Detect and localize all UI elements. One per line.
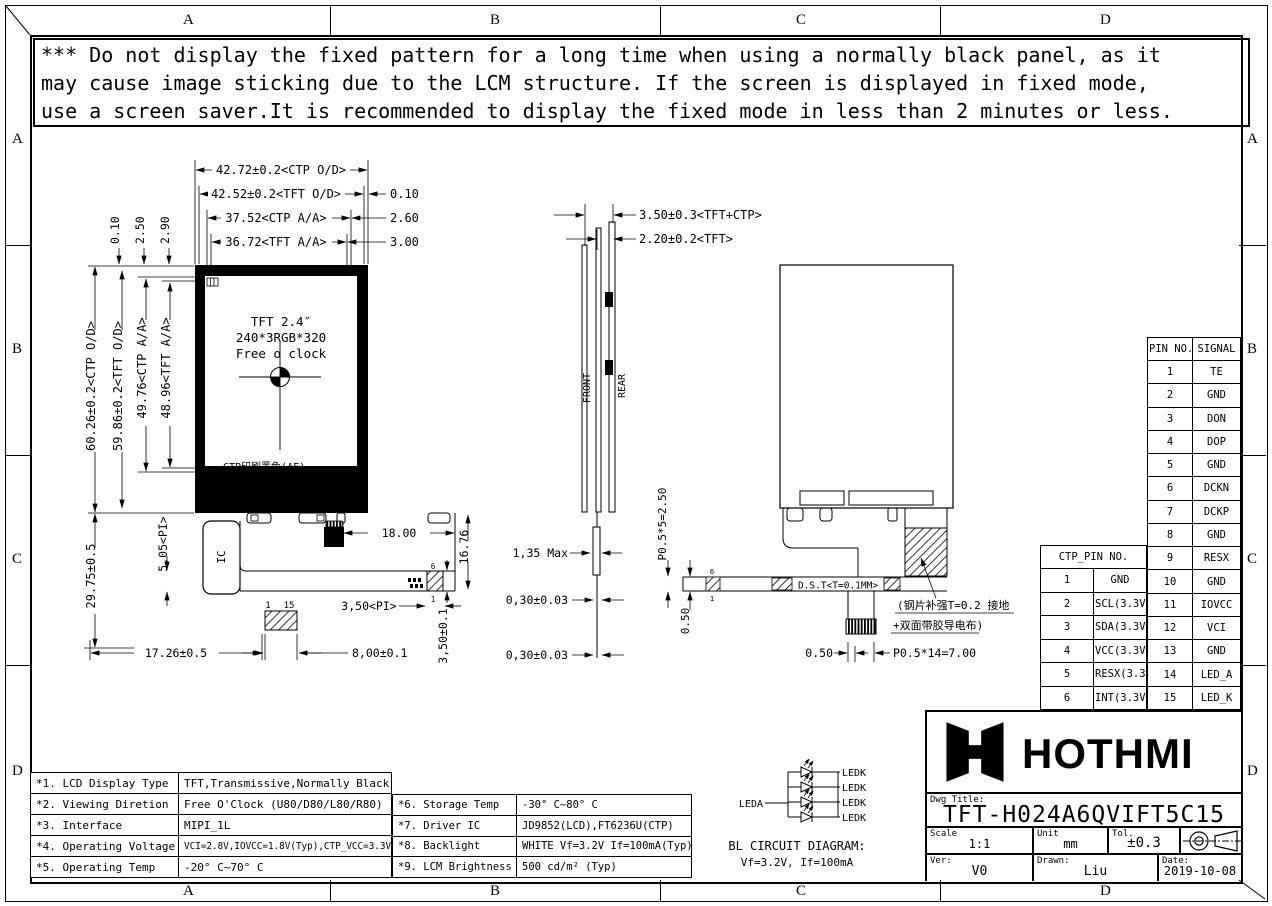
dim-label: 0.10 bbox=[390, 187, 419, 201]
dim-label: 2.20±0.2<TFT> bbox=[639, 232, 733, 246]
led-row bbox=[788, 774, 840, 792]
pin-signal: RESX(3.3V) bbox=[1094, 663, 1147, 687]
col-header: PIN NO. bbox=[1148, 338, 1193, 361]
pin-number: 1 bbox=[265, 601, 270, 611]
projection-cell bbox=[1179, 826, 1241, 853]
pin-no: 2 bbox=[1041, 592, 1094, 616]
projection-symbol-icon bbox=[1181, 828, 1243, 855]
pin-signal: GND bbox=[1193, 570, 1241, 593]
pin-no: 11 bbox=[1148, 593, 1193, 616]
dim-label: 0.50 bbox=[805, 646, 833, 660]
bl-circuit-subtitle: Vf=3.2V, If=100mA bbox=[741, 856, 854, 869]
signal-pin-table: PIN NO. SIGNAL 1TE 2GND 3DON 4DOP 5GND 6… bbox=[1147, 337, 1241, 710]
version-row: Ver: V0 Drawn: Liu Date: 2019-10-08 bbox=[927, 853, 1241, 881]
corner-diagonal bbox=[1239, 880, 1265, 899]
drawing-sheet: A B C D A B C D A B C D A B C D *** Do n… bbox=[0, 0, 1272, 906]
spec-value: WHITE Vf=3.2V If=100mA(Typ) bbox=[517, 836, 692, 857]
ledk-label: LEDK bbox=[842, 768, 866, 779]
pin-signal: SDA(3.3V) bbox=[1094, 616, 1147, 640]
pin-number: 1 bbox=[431, 595, 436, 604]
pin-signal: GND bbox=[1193, 640, 1241, 663]
pin-no: 5 bbox=[1148, 454, 1193, 477]
dim-label: 0,30±0.03 bbox=[506, 648, 568, 662]
pin-no: 1 bbox=[1041, 569, 1094, 593]
led-row bbox=[788, 804, 840, 822]
spec-label: *9. LCM Brightness bbox=[393, 857, 517, 878]
stiffener-note: +双面带胶导电布) bbox=[893, 618, 983, 632]
pin-number: 1 bbox=[710, 595, 714, 603]
tol-value: ±0.3 bbox=[1109, 835, 1179, 851]
dim-label: 59.86±0.2<TFT O/D> bbox=[111, 321, 125, 451]
dim-label: P0.5*14=7.00 bbox=[893, 646, 976, 660]
pin-signal: GND bbox=[1193, 384, 1241, 407]
dim-label: 2.90 bbox=[158, 216, 172, 244]
pin-no: 8 bbox=[1148, 523, 1193, 546]
dim-label: 60.26±0.2<CTP O/D> bbox=[84, 321, 98, 451]
pin-number: 6 bbox=[431, 562, 436, 571]
pin-no: 7 bbox=[1148, 500, 1193, 523]
spec-label: *5. Operating Temp bbox=[31, 857, 179, 878]
spec-label: *6. Storage Temp bbox=[393, 795, 517, 816]
pin-no: 9 bbox=[1148, 547, 1193, 570]
spec-label: *4. Operating Voltage bbox=[31, 836, 179, 857]
dim-label: 42.72±0.2<CTP O/D> bbox=[216, 163, 346, 177]
spec-value: VCI=2.8V,IOVCC=1.8V(Typ),CTP_VCC=3.3V bbox=[179, 836, 392, 857]
side-view: FRONT REAR bbox=[506, 204, 947, 662]
spec-table-left: *1. LCD Display TypeTFT,Transmissive,Nor… bbox=[30, 772, 392, 878]
brand-name: HOTHMI bbox=[1022, 733, 1194, 775]
pin-no: 12 bbox=[1148, 616, 1193, 639]
hothmi-logo-icon bbox=[939, 721, 1011, 783]
pin-no: 6 bbox=[1148, 477, 1193, 500]
ic-label: IC bbox=[215, 550, 228, 563]
bl-circuit-title: BL CIRCUIT DIAGRAM: bbox=[728, 839, 865, 853]
pin-signal: LED_A bbox=[1193, 663, 1241, 686]
dim-label: P0.5*5=2.50 bbox=[656, 488, 669, 561]
pin-no: 2 bbox=[1148, 384, 1193, 407]
date-cell: Date: 2019-10-08 bbox=[1157, 853, 1241, 881]
led-row bbox=[788, 759, 840, 777]
ledk-label: LEDK bbox=[842, 783, 866, 794]
dim-label: 17.26±0.5 bbox=[145, 646, 207, 660]
ver-cell: Ver: V0 bbox=[927, 853, 1032, 881]
pin-no: 6 bbox=[1041, 686, 1094, 710]
dim-label: 0.50 bbox=[679, 608, 692, 635]
dim-label: 3,50±0.1 bbox=[436, 608, 450, 663]
pin-signal: RESX bbox=[1193, 547, 1241, 570]
rear-label: REAR bbox=[617, 373, 628, 398]
pin-no: 14 bbox=[1148, 663, 1193, 686]
pin-no: 10 bbox=[1148, 570, 1193, 593]
dim-label: 2.60 bbox=[390, 211, 419, 225]
unit-cell: Unit mm bbox=[1032, 826, 1107, 853]
stiffener-note: (钢片补强T=0.2 接地 bbox=[897, 599, 1009, 612]
tol-cell: Tol. ±0.3 bbox=[1107, 826, 1179, 853]
pin-signal: GND bbox=[1094, 569, 1147, 593]
ledk-label: LEDK bbox=[842, 798, 866, 809]
spec-label: *8. Backlight bbox=[393, 836, 517, 857]
spec-table-right: *6. Storage Temp-30° C~80° C *7. Driver … bbox=[392, 794, 692, 878]
front-view: TFT 2.4″ 240*3RGB*320 Free o clock CTP印刷… bbox=[195, 265, 455, 630]
spec-label: *1. LCD Display Type bbox=[31, 773, 179, 794]
pin-signal: INT(3.3V) bbox=[1094, 686, 1147, 710]
spec-value: JD9852(LCD),FT6236U(CTP) bbox=[517, 815, 692, 836]
leda-label: LEDA bbox=[739, 799, 763, 810]
component bbox=[324, 527, 344, 547]
rear-view: D.S.T<T=0.1MM> (钢片补强T=0.2 接地 +双面带胶导电布) 0… bbox=[772, 265, 1014, 662]
spec-value: TFT,Transmissive,Normally Black bbox=[179, 773, 392, 794]
screen-clock-label: Free o clock bbox=[236, 346, 327, 361]
pin-number: 15 bbox=[284, 601, 295, 611]
dwg-title-row: Dwg Title: TFT-H024A6QVIFT5C15 bbox=[927, 792, 1241, 826]
spec-label: *2. Viewing Diretion bbox=[31, 794, 179, 815]
pin-no: 15 bbox=[1148, 686, 1193, 709]
dst-note: D.S.T<T=0.1MM> bbox=[798, 581, 878, 592]
spec-value: -30° C~80° C bbox=[517, 795, 692, 816]
logo-row: HOTHMI bbox=[927, 712, 1241, 792]
pin-comb bbox=[846, 619, 876, 634]
ctp-pin-table: CTP_PIN NO. 1GND 2SCL(3.3V) 3SDA(3.3V) 4… bbox=[1040, 545, 1147, 710]
dim-label: 49.76<CTP A/A> bbox=[135, 317, 149, 418]
pin-no: 3 bbox=[1041, 616, 1094, 640]
pin-signal: DON bbox=[1193, 407, 1241, 430]
scale-value: 1:1 bbox=[927, 837, 1032, 851]
drawn-cell: Drawn: Liu bbox=[1032, 853, 1157, 881]
spec-label: *3. Interface bbox=[31, 815, 179, 836]
pin-signal: IOVCC bbox=[1193, 593, 1241, 616]
stiffener bbox=[265, 611, 297, 630]
pin-signal: GND bbox=[1193, 523, 1241, 546]
pin-signal: LED_K bbox=[1193, 686, 1241, 709]
ver-value: V0 bbox=[927, 864, 1032, 879]
table-header: CTP_PIN NO. bbox=[1041, 546, 1147, 569]
pin-number: 6 bbox=[710, 568, 714, 576]
pin-no: 3 bbox=[1148, 407, 1193, 430]
pin-signal: DCKP bbox=[1193, 500, 1241, 523]
dim-label: 8,00±0.1 bbox=[352, 646, 407, 660]
dim-label: 37.52<CTP A/A> bbox=[225, 211, 326, 225]
date-value: 2019-10-08 bbox=[1159, 864, 1241, 878]
pin-signal: SCL(3.3V) bbox=[1094, 592, 1147, 616]
dim-label: 48.96<TFT A/A> bbox=[159, 317, 173, 418]
pin-signal: VCC(3.3V) bbox=[1094, 639, 1147, 663]
pin-no: 4 bbox=[1148, 430, 1193, 453]
bl-circuit-diagram: LEDA LEDK LEDK LEDK LEDK bbox=[728, 759, 866, 869]
steel-stiffener bbox=[905, 528, 947, 576]
pin-signal: DOP bbox=[1193, 430, 1241, 453]
dim-label: 16.76 bbox=[457, 530, 471, 565]
scale-row: Scale 1:1 Unit mm Tol. ±0.3 bbox=[927, 826, 1241, 853]
ctp-print-note: CTP印刷黑色(AF) bbox=[223, 460, 305, 473]
spec-value: MIPI_1L bbox=[179, 815, 392, 836]
pin-no: 13 bbox=[1148, 640, 1193, 663]
spec-value: -20° C~70° C bbox=[179, 857, 392, 878]
corner-diagonal bbox=[6, 6, 30, 35]
title-block: HOTHMI Dwg Title: TFT-H024A6QVIFT5C15 Sc… bbox=[925, 710, 1241, 881]
pin-no: 4 bbox=[1041, 639, 1094, 663]
screen-size-label: TFT 2.4″ bbox=[251, 314, 311, 329]
dim-label: 29.75±0.5 bbox=[84, 543, 98, 608]
dwg-title: TFT-H024A6QVIFT5C15 bbox=[927, 802, 1241, 828]
drawn-value: Liu bbox=[1034, 864, 1157, 879]
dim-label: 36.72<TFT A/A> bbox=[225, 235, 326, 249]
front-label: FRONT bbox=[582, 373, 593, 403]
scale-cell: Scale 1:1 bbox=[927, 826, 1032, 853]
dim-label: 3,50<PI> bbox=[341, 599, 396, 613]
dim-label: 0,30±0.03 bbox=[506, 593, 568, 607]
dim-label: 1,35 Max bbox=[513, 546, 568, 560]
dim-label: 2.50 bbox=[133, 216, 147, 244]
dim-label: 42.52±0.2<TFT O/D> bbox=[211, 187, 341, 201]
pin-signal: TE bbox=[1193, 361, 1241, 384]
dim-label: 5,05<PI> bbox=[156, 516, 170, 571]
spec-value: Free O'Clock (U80/D80/L80/R80) bbox=[179, 794, 392, 815]
screen-res-label: 240*3RGB*320 bbox=[236, 330, 326, 345]
tail-connector bbox=[427, 571, 443, 591]
led-row bbox=[788, 789, 840, 807]
pin-no: 1 bbox=[1148, 361, 1193, 384]
pin-signal: VCI bbox=[1193, 616, 1241, 639]
dim-label: 0.10 bbox=[108, 216, 122, 244]
unit-value: mm bbox=[1034, 837, 1107, 851]
pin-signal: GND bbox=[1193, 454, 1241, 477]
col-header: SIGNAL bbox=[1193, 338, 1241, 361]
spec-value: 500 cd/m² (Typ) bbox=[517, 857, 692, 878]
pin-signal: DCKN bbox=[1193, 477, 1241, 500]
spec-label: *7. Driver IC bbox=[393, 815, 517, 836]
ledk-label: LEDK bbox=[842, 813, 866, 824]
dim-label: 3.00 bbox=[390, 235, 419, 249]
dim-label: 3.50±0.3<TFT+CTP> bbox=[639, 208, 762, 222]
pin-no: 5 bbox=[1041, 663, 1094, 687]
dim-label: 18.00 bbox=[382, 526, 417, 540]
